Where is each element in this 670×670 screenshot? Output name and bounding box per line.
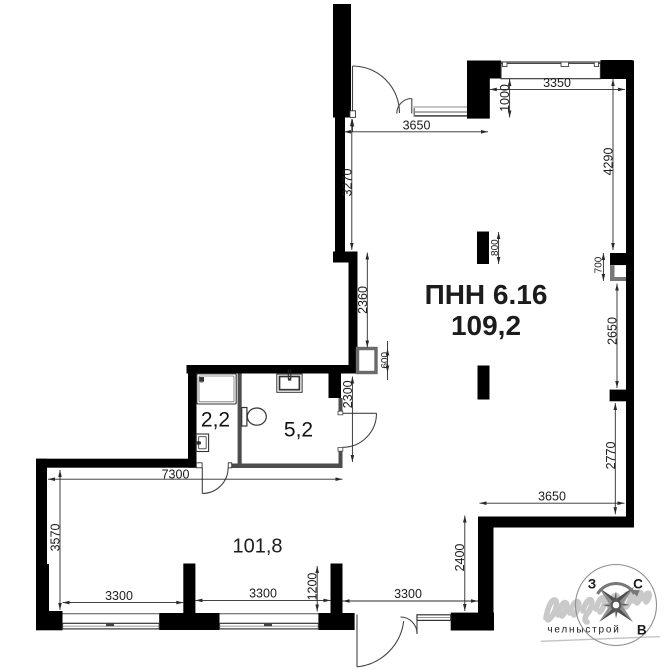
svg-text:800: 800 bbox=[490, 239, 501, 256]
svg-text:3300: 3300 bbox=[105, 589, 133, 603]
svg-text:101,8: 101,8 bbox=[232, 536, 282, 558]
svg-text:1000: 1000 bbox=[498, 84, 512, 112]
svg-text:1200: 1200 bbox=[306, 573, 320, 601]
svg-text:600: 600 bbox=[380, 352, 391, 369]
svg-text:ПНН 6.16: ПНН 6.16 bbox=[425, 279, 548, 310]
svg-text:В: В bbox=[637, 623, 647, 638]
svg-text:7300: 7300 bbox=[162, 467, 190, 481]
svg-text:2300: 2300 bbox=[341, 380, 355, 408]
svg-text:2,2: 2,2 bbox=[201, 409, 230, 432]
svg-text:З: З bbox=[588, 577, 596, 592]
svg-text:3650: 3650 bbox=[538, 489, 566, 503]
svg-text:4290: 4290 bbox=[602, 148, 616, 176]
svg-text:2770: 2770 bbox=[604, 442, 618, 470]
svg-text:3650: 3650 bbox=[403, 119, 431, 133]
svg-text:3300: 3300 bbox=[394, 587, 422, 601]
svg-text:2360: 2360 bbox=[356, 286, 370, 314]
svg-text:3570: 3570 bbox=[49, 524, 63, 552]
svg-text:3300: 3300 bbox=[249, 587, 277, 601]
svg-text:3270: 3270 bbox=[340, 169, 354, 197]
svg-text:3350: 3350 bbox=[543, 76, 571, 90]
svg-text:2400: 2400 bbox=[453, 544, 467, 572]
svg-text:2650: 2650 bbox=[606, 317, 620, 345]
svg-text:С: С bbox=[633, 577, 643, 592]
svg-text:5,2: 5,2 bbox=[284, 419, 313, 442]
svg-text:700: 700 bbox=[593, 256, 604, 273]
svg-text:109,2: 109,2 bbox=[451, 310, 521, 341]
